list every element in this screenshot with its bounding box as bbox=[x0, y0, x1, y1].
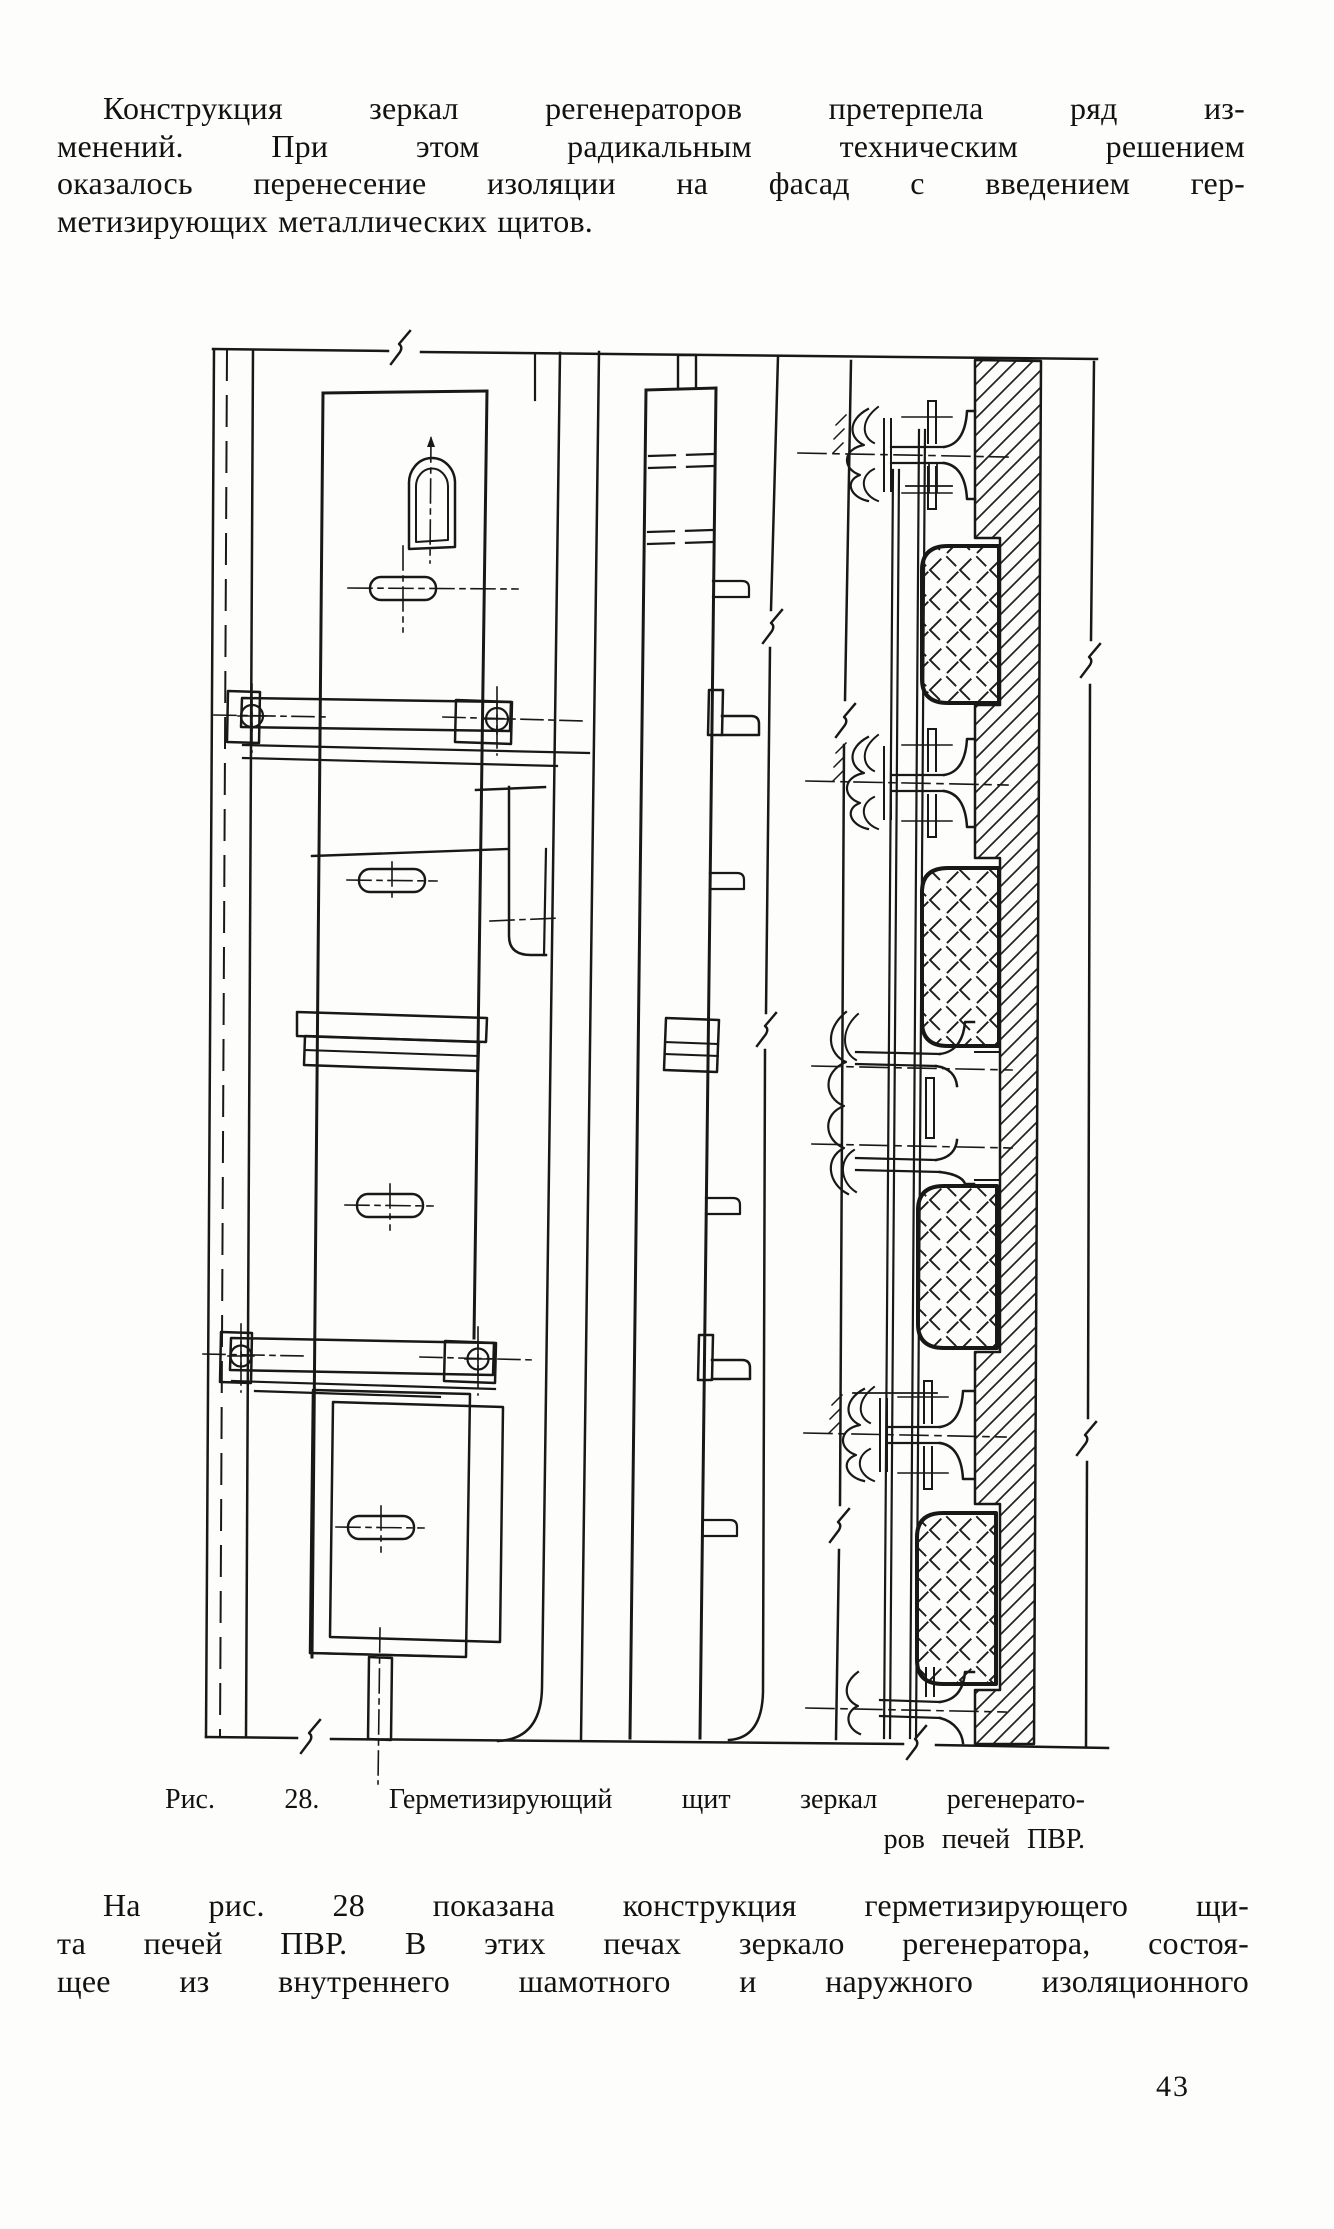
collar-profile bbox=[664, 1018, 719, 1072]
upper-clamp-bar bbox=[214, 684, 589, 766]
lower-panel bbox=[310, 1390, 503, 1784]
text-line: На рис. 28 показана конструкция герметиз… bbox=[57, 1886, 1249, 1924]
scanned-book-page: { "page": { "intro_paragraph": { "lines"… bbox=[0, 0, 1334, 2229]
profile-view bbox=[581, 352, 782, 1740]
text-line: та печей ПВР. В этих печах зеркало реген… bbox=[57, 1924, 1249, 1962]
figure-caption: Рис. 28. Герметизирующий щит зеркал реге… bbox=[165, 1780, 1085, 1860]
caption-line: Рис. 28. Герметизирующий щит зеркал реге… bbox=[165, 1780, 1085, 1820]
lower-clamp-bar bbox=[203, 1324, 536, 1397]
slot-bosses bbox=[703, 581, 749, 1536]
oval-slots bbox=[336, 546, 518, 1552]
left-elevation-view bbox=[203, 350, 589, 1784]
body-paragraph: На рис. 28 показана конструкция герметиз… bbox=[57, 1886, 1249, 2000]
side-tab-plate bbox=[476, 787, 560, 955]
text-line: щее из внутреннего шамотного и наружного… bbox=[57, 1962, 1249, 2000]
page-number: 43 bbox=[1156, 2070, 1190, 2104]
collar-band bbox=[297, 1012, 487, 1071]
arched-opening bbox=[409, 436, 455, 563]
section-view bbox=[798, 360, 1100, 1747]
caption-line: ров печей ПВР. bbox=[165, 1820, 1085, 1860]
